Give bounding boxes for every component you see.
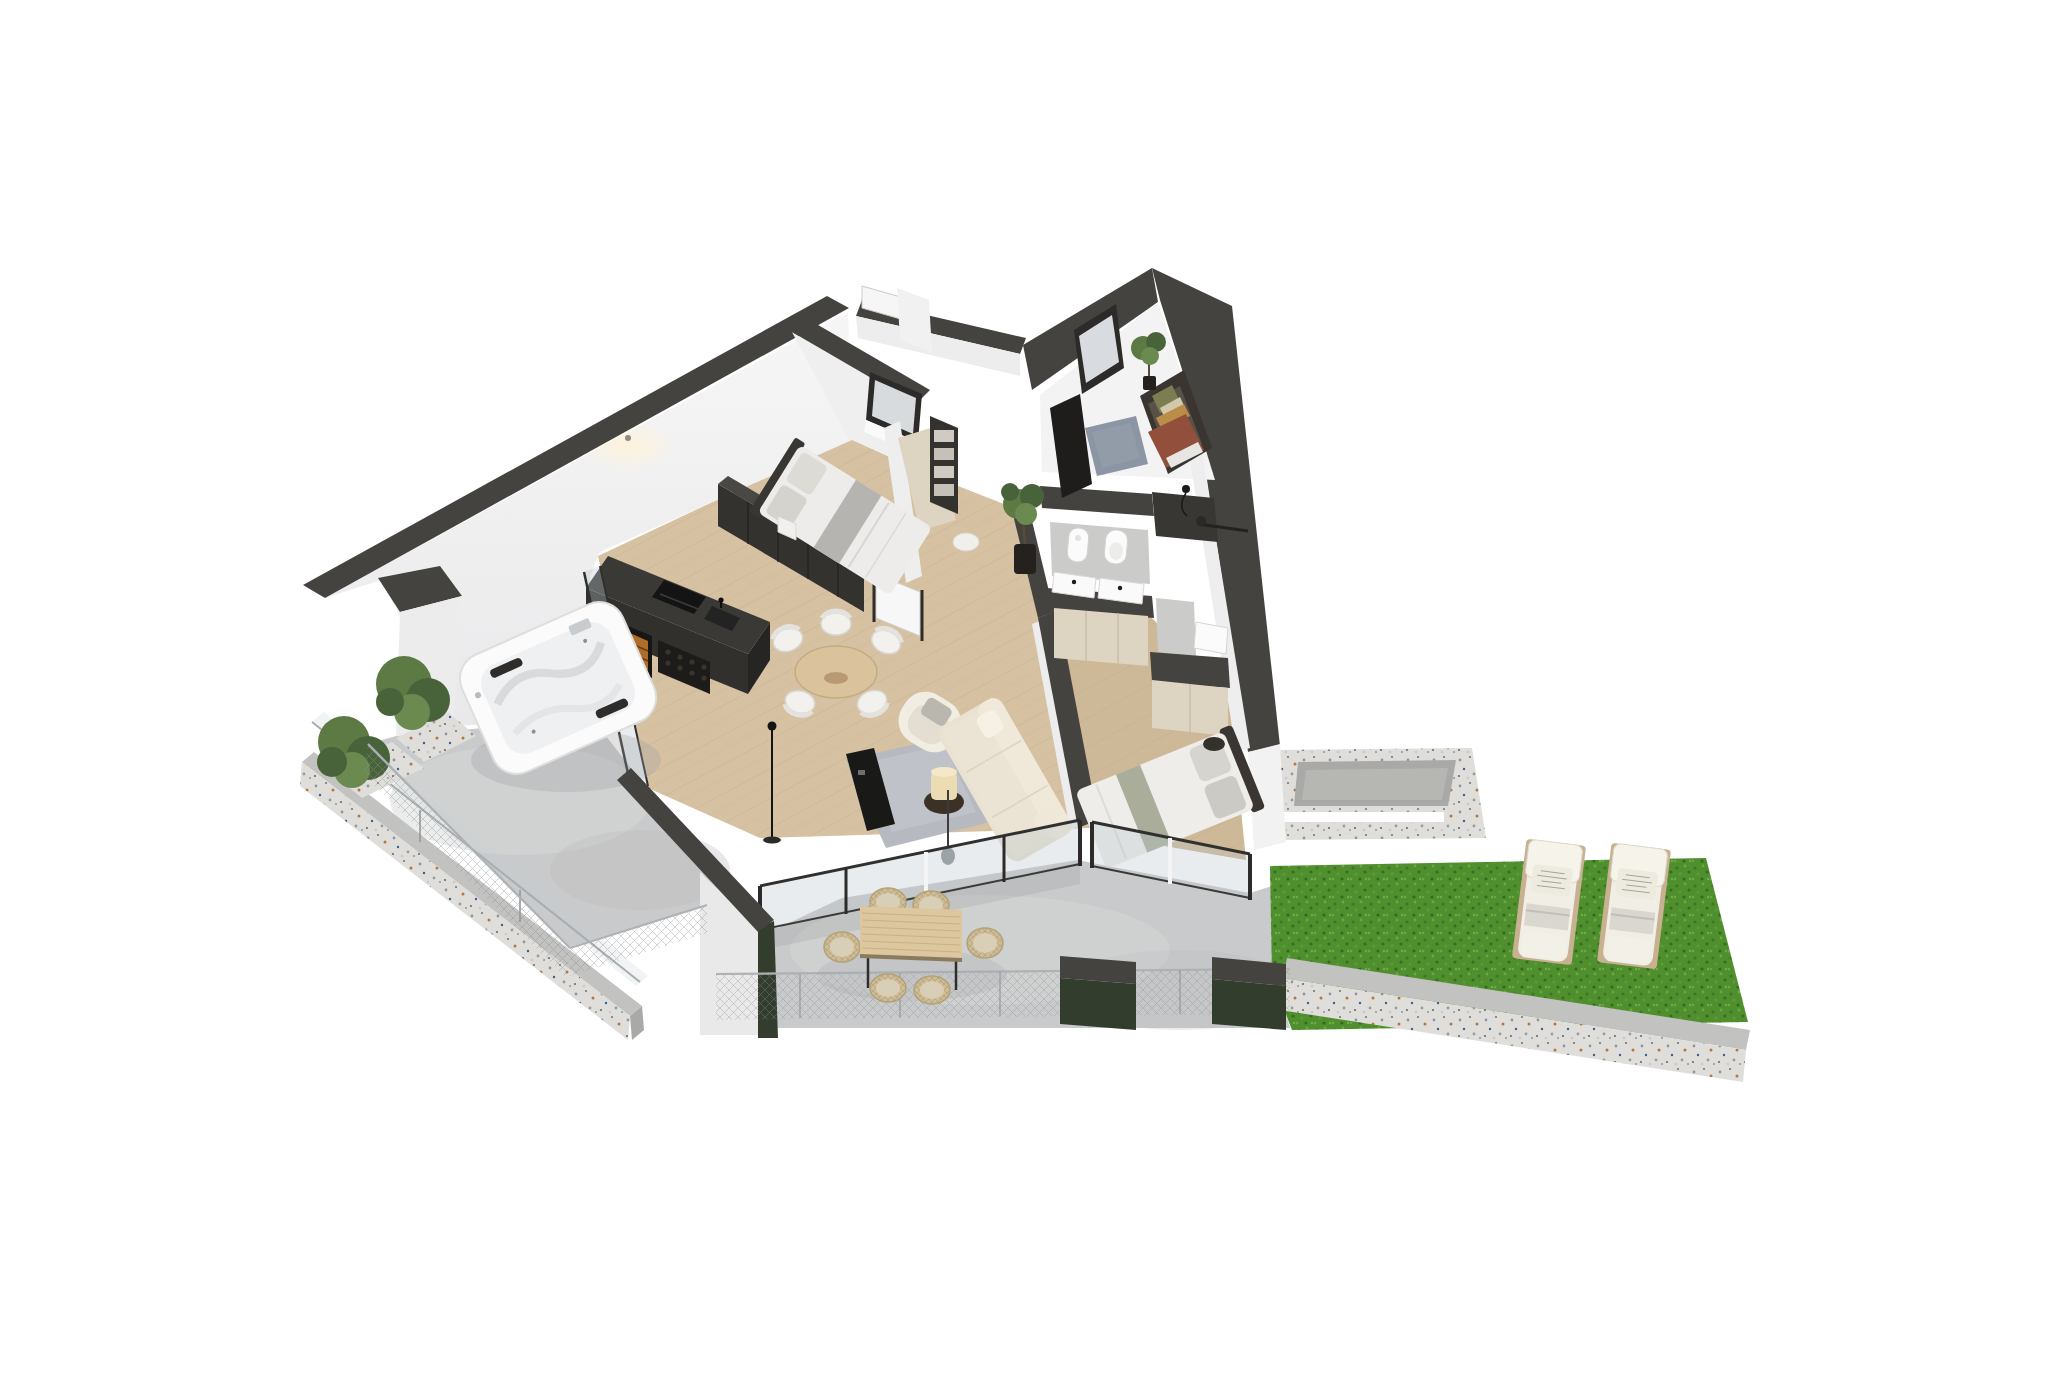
hall-plant-pot	[1014, 544, 1036, 574]
planter-inner-floor	[1302, 768, 1448, 800]
planter-ring	[1272, 748, 1486, 840]
fence-pillar-2	[1212, 957, 1286, 1030]
ceiling-light	[625, 435, 631, 441]
outdoor-chair-cushion	[973, 933, 997, 953]
pillar2-green	[1212, 979, 1286, 1030]
outdoor-chair-cushion	[876, 979, 900, 997]
outdoor-chair	[967, 928, 1003, 958]
study-plant-pot	[1143, 376, 1156, 390]
lounger-pillow	[1530, 864, 1573, 897]
floor-plan-render	[0, 0, 2048, 1377]
table-lamp-top	[931, 767, 957, 777]
dining-chair	[821, 611, 851, 635]
floor-plan-stage	[0, 0, 2048, 1377]
hall-shelving	[930, 416, 958, 514]
bidet	[1067, 527, 1090, 563]
shelf-cubby-3	[934, 466, 954, 478]
wc-basin	[1194, 622, 1228, 654]
hall-cabinet-row	[1054, 608, 1148, 666]
faucet-2	[1118, 586, 1122, 590]
bidet-tap	[1075, 535, 1081, 541]
fence-pillar-1	[1060, 956, 1136, 1030]
outdoor-chair	[870, 974, 906, 1002]
outdoor-chair	[824, 932, 860, 962]
hall-plant-leaf3	[1015, 503, 1037, 525]
toilet-seat	[1109, 542, 1123, 560]
lounger-pillow	[1615, 868, 1658, 901]
toilet	[1104, 529, 1129, 565]
shower-tile-floor	[1156, 598, 1196, 656]
shower-head	[1182, 485, 1190, 493]
shelf-cubby-2	[934, 448, 954, 460]
shower-dark-wall	[1152, 492, 1218, 542]
bidet-body	[1067, 527, 1090, 563]
hall-plant-leaf4	[1001, 483, 1019, 501]
shower-dish	[1196, 516, 1206, 526]
faucet-1	[1072, 580, 1076, 584]
lamp-base	[763, 837, 781, 844]
lamp-head	[768, 722, 777, 731]
pillar1-green	[1060, 978, 1136, 1030]
planter-slot	[1284, 812, 1444, 822]
console-decor	[858, 770, 865, 775]
dining-table-base	[824, 672, 848, 684]
shelf-cubby-1	[934, 430, 954, 442]
outdoor-chair-cushion	[920, 981, 944, 999]
hall-pouf	[953, 533, 979, 551]
study-plant-leaf3	[1141, 347, 1159, 365]
bath-wall-band1	[1040, 486, 1154, 516]
outdoor-chair-cushion	[830, 937, 854, 957]
bed2-stool	[1203, 737, 1225, 751]
shelf-cubby-4	[934, 484, 954, 496]
outdoor-chair	[914, 976, 950, 1004]
